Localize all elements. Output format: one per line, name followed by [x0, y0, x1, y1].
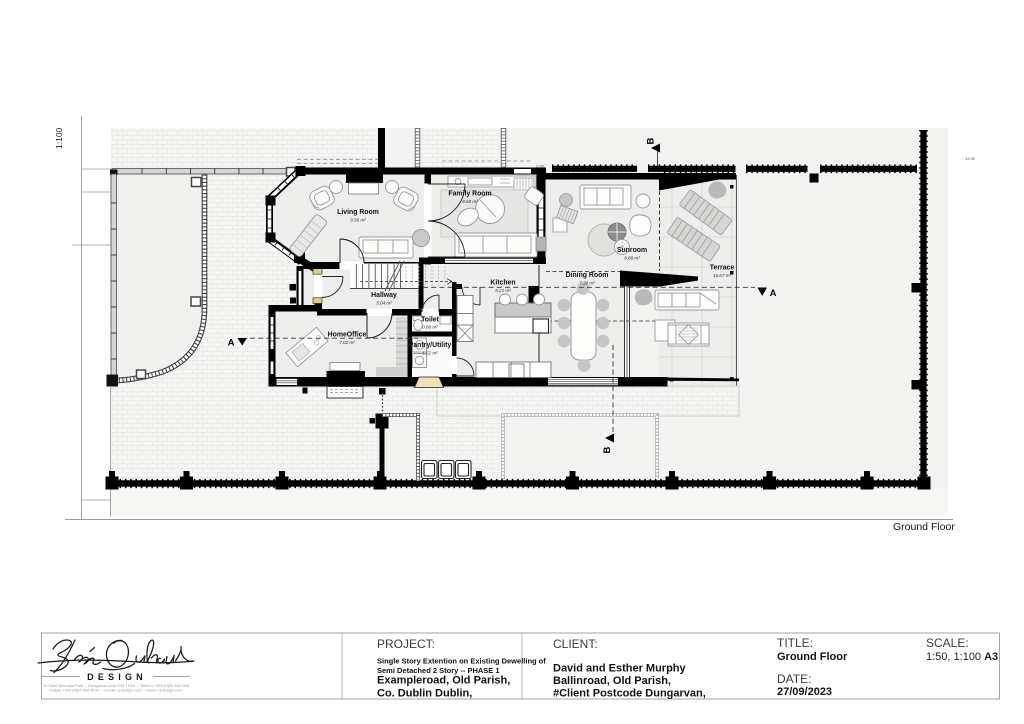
svg-text:7.02 m²: 7.02 m²	[339, 340, 355, 345]
svg-text:0.80 m²: 0.80 m²	[422, 325, 438, 330]
svg-text:David and Esther Murphy: David and Esther Murphy	[553, 663, 687, 675]
svg-text:Dining Room: Dining Room	[566, 272, 609, 279]
svg-text:5.04 m²: 5.04 m²	[376, 301, 392, 306]
svg-text:9.21 m²: 9.21 m²	[495, 288, 511, 293]
svg-text:Terrace: Terrace	[710, 265, 735, 272]
svg-text:Co. Dublin Dublin,: Co. Dublin Dublin,	[377, 688, 472, 700]
svg-text:9.56 m²: 9.56 m²	[350, 218, 366, 223]
svg-text:0.00: 0.00	[536, 165, 544, 169]
svg-text:Kitchen: Kitchen	[490, 280, 515, 287]
svg-text:PROJECT:: PROJECT:	[377, 637, 435, 651]
svg-text:CLIENT:: CLIENT:	[553, 637, 598, 651]
svg-text:Toilet: Toilet	[421, 317, 440, 324]
svg-text:8.88 m²: 8.88 m²	[624, 256, 640, 261]
svg-text:DATE:: DATE:	[777, 672, 811, 686]
svg-text:B: B	[646, 137, 657, 144]
svg-text:Ground Floor: Ground Floor	[777, 651, 848, 663]
svg-text:1:100: 1:100	[54, 127, 64, 149]
svg-text:Pantry/Utility: Pantry/Utility	[409, 342, 452, 349]
svg-text:7.39 m²: 7.39 m²	[579, 281, 595, 286]
svg-text:Living Room: Living Room	[337, 209, 379, 216]
svg-text:mobile +353 (0)87 430 8737 -: mobile +353 (0)87 430 8737 -- info@r-q-d…	[49, 688, 183, 693]
svg-text:SCALE:: SCALE:	[926, 636, 969, 650]
svg-text:Hallway: Hallway	[371, 292, 397, 299]
svg-text:Exampleroad, Old Parish,: Exampleroad, Old Parish,	[377, 675, 510, 687]
svg-text:27/09/2023: 27/09/2023	[777, 686, 832, 698]
svg-text:1.52 m²: 1.52 m²	[422, 351, 438, 356]
svg-text:Ballinroad, Old Parish,: Ballinroad, Old Parish,	[553, 675, 671, 687]
svg-text:49.95: 49.95	[965, 157, 975, 161]
svg-text:Family Room: Family Room	[448, 191, 491, 198]
svg-text:TITLE:: TITLE:	[777, 636, 813, 650]
svg-text:#Client Postcode Dungarvan,: #Client Postcode Dungarvan,	[553, 688, 706, 700]
svg-text:Ground Floor: Ground Floor	[893, 521, 955, 533]
svg-text:1:50, 1:100 A3: 1:50, 1:100 A3	[926, 651, 998, 663]
svg-text:Sunroom: Sunroom	[617, 247, 647, 254]
svg-text:8.68 m²: 8.68 m²	[462, 199, 478, 204]
svg-text:HomeOffice: HomeOffice	[328, 332, 367, 339]
svg-text:16.67 m²: 16.67 m²	[713, 273, 732, 278]
svg-text:A: A	[770, 288, 777, 299]
svg-text:B: B	[602, 446, 613, 453]
svg-text:Single Story Extention on Exis: Single Story Extention on Existing Dewel…	[377, 657, 546, 666]
svg-text:DESIGN: DESIGN	[87, 672, 147, 682]
svg-text:A: A	[228, 338, 235, 349]
